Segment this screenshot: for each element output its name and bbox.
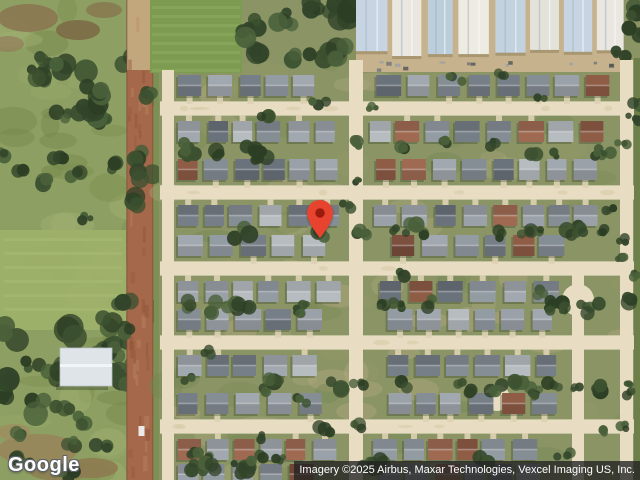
imagery-attribution: Imagery ©2025 Airbus, Maxar Technologies… (294, 461, 640, 480)
location-pin-marker[interactable] (307, 200, 333, 238)
pin-body-icon (307, 200, 333, 238)
google-logo[interactable]: Google (8, 454, 80, 477)
map-viewport[interactable]: Google Imagery ©2025 Airbus, Maxar Techn… (0, 0, 640, 480)
satellite-imagery[interactable] (0, 0, 640, 480)
sports-field (150, 0, 242, 73)
pin-dot-icon (315, 208, 324, 217)
